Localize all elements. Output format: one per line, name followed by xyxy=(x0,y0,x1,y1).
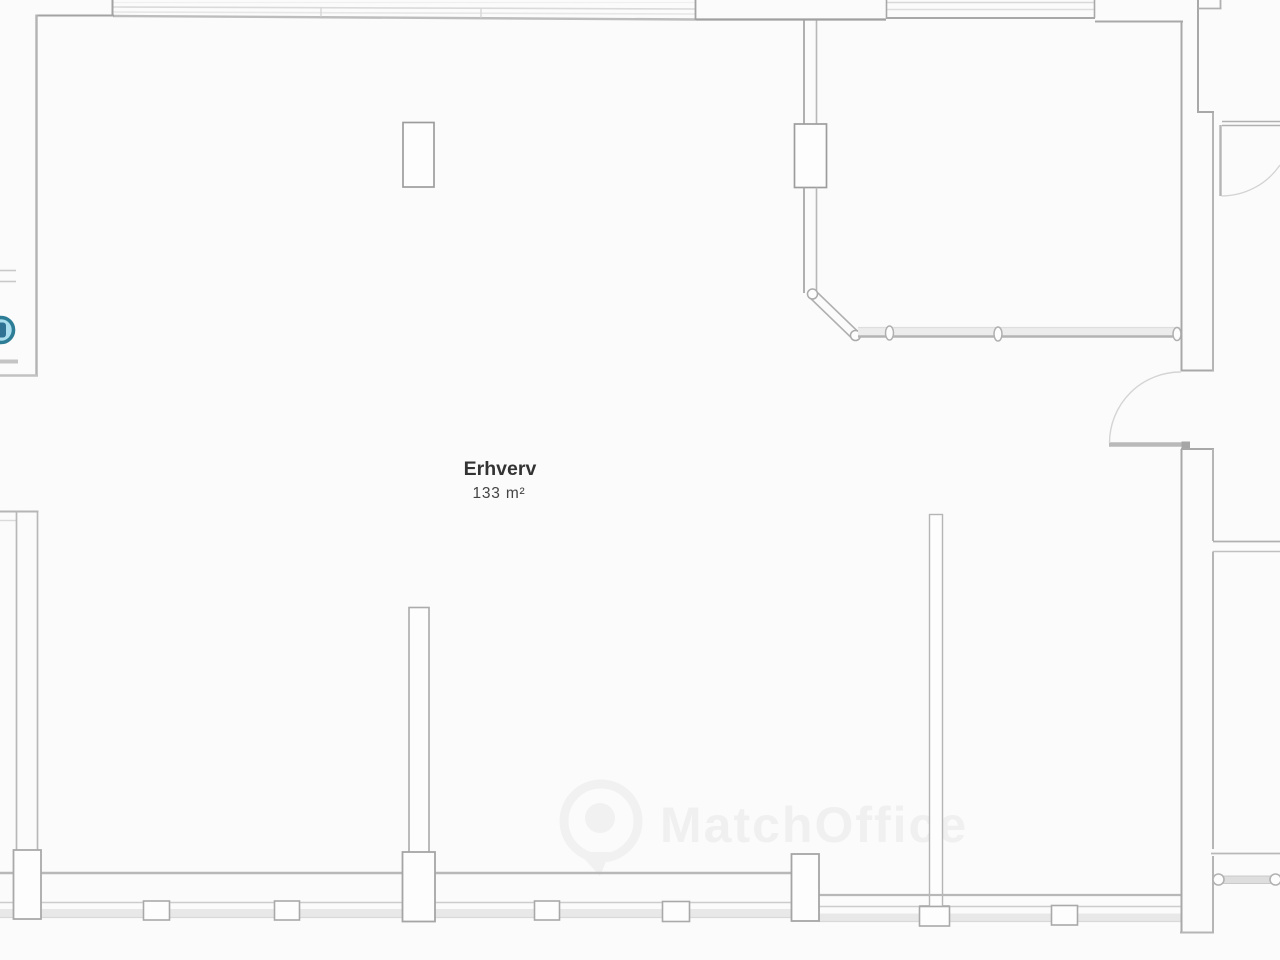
svg-text:Erhverv: Erhverv xyxy=(464,458,537,480)
svg-text:133 m²: 133 m² xyxy=(472,485,525,502)
svg-text:MatchOffice: MatchOffice xyxy=(660,797,968,853)
